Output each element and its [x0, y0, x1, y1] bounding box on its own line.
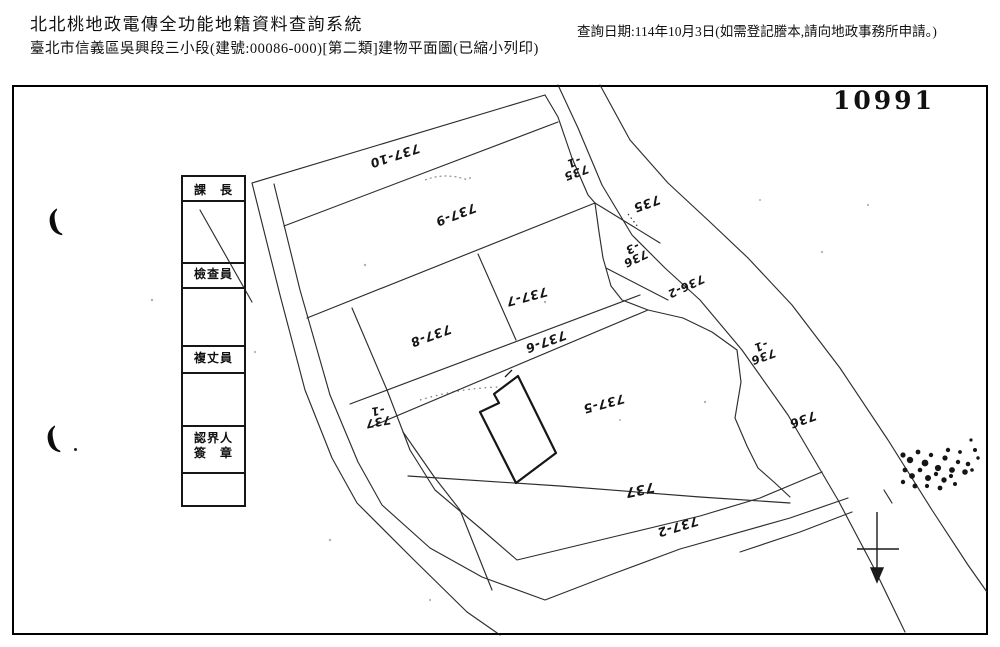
document-title: 臺北市信義區吳興段三小段(建號:00086-000)[第二類]建物平面圖(已縮小… [30, 37, 539, 58]
table-row-divider [183, 262, 244, 264]
parcel-label-737-1: 737-1 [365, 403, 391, 430]
role-label-resurveyor: 複丈員 [183, 349, 244, 366]
ink-dot [74, 448, 77, 451]
role-label-inspector: 檢查員 [183, 265, 244, 282]
sheet-number: 10991 [833, 86, 935, 115]
table-row-divider [183, 345, 244, 347]
role-label-signature-seal: 簽 章 [183, 444, 244, 461]
map-border-frame [12, 85, 988, 635]
cadastral-report-page: 北北桃地政電傳全功能地籍資料查詢系統 臺北市信義區吳興段三小段(建號:00086… [0, 0, 1000, 647]
table-row-divider [183, 372, 244, 374]
table-row-divider [183, 287, 244, 289]
table-row-divider [183, 472, 244, 474]
system-title: 北北桃地政電傳全功能地籍資料查詢系統 [30, 10, 363, 35]
query-date-note: 查詢日期:114年10月3日(如需登記謄本,請向地政事務所申請。) [577, 20, 937, 40]
role-label-section-chief: 課 長 [183, 181, 244, 198]
parcel-label-737: 737 [625, 480, 655, 497]
table-row-divider [183, 200, 244, 202]
table-row-divider [183, 425, 244, 427]
signature-table: 課 長 檢查員 複丈員 認界人 簽 章 [181, 175, 246, 507]
